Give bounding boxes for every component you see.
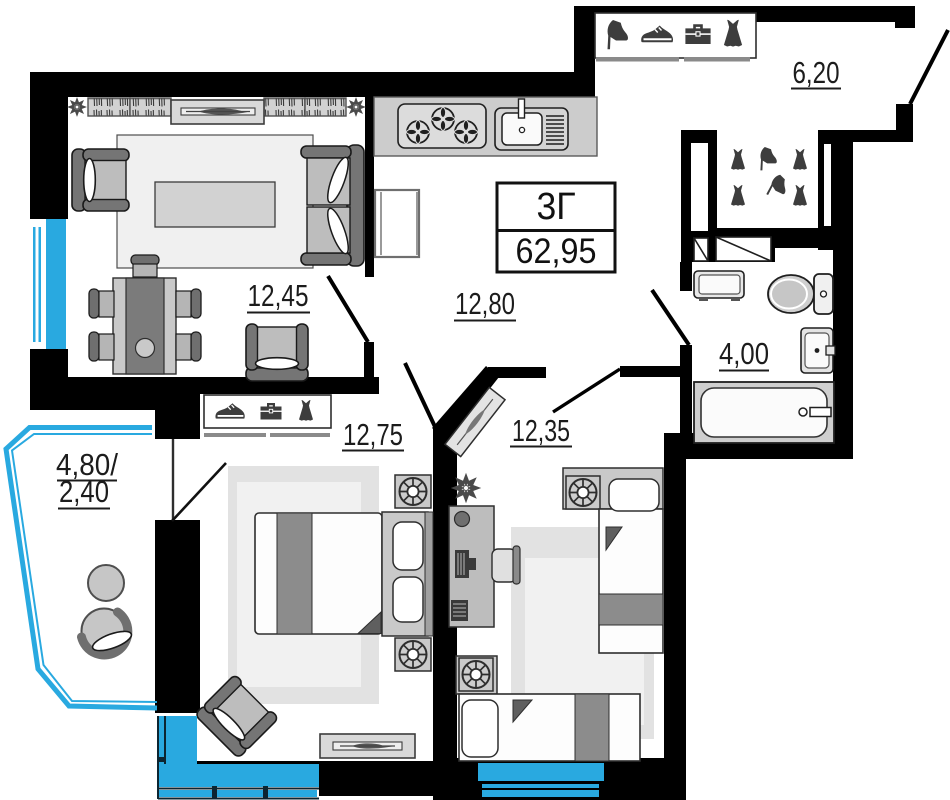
svg-text:6,20: 6,20	[793, 55, 840, 90]
svg-text:62,95: 62,95	[516, 232, 597, 271]
svg-text:12,80: 12,80	[455, 286, 515, 321]
svg-text:12,45: 12,45	[248, 278, 309, 313]
svg-text:12,35: 12,35	[512, 413, 570, 448]
svg-text:3Г: 3Г	[537, 186, 576, 228]
svg-text:4,00: 4,00	[719, 336, 769, 371]
svg-text:12,75: 12,75	[343, 417, 403, 452]
svg-text:2,40: 2,40	[59, 474, 109, 509]
